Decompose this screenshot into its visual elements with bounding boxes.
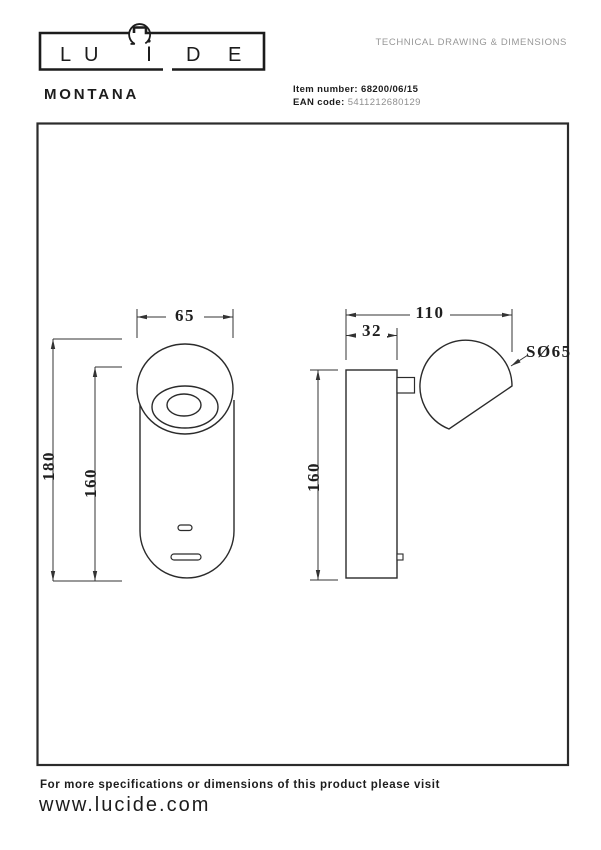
- dim-value-65: 65: [175, 306, 195, 325]
- sphere-diameter-callout: SØ65: [511, 342, 572, 366]
- dim-overall-height-180: 180: [39, 339, 122, 581]
- dim-base-depth-32: 32: [346, 321, 397, 360]
- side-view: [346, 340, 512, 578]
- dim-value-160-side: 160: [304, 462, 323, 492]
- side-view-joint: [397, 378, 415, 394]
- dim-body-height-160-front: 160: [81, 367, 122, 581]
- spec-sheet-page: L U D E TECHNICAL DRAWING & DIMENSIONS M…: [0, 0, 601, 850]
- dim-value-160-front: 160: [81, 468, 100, 498]
- sphere-diameter-label: SØ65: [526, 342, 572, 361]
- front-view: [137, 344, 234, 578]
- dim-body-height-160-side: 160: [304, 370, 338, 580]
- technical-drawing: 65 180 160: [0, 0, 601, 850]
- side-view-body: [346, 370, 397, 578]
- dim-value-180: 180: [39, 451, 58, 481]
- dim-value-32: 32: [362, 321, 382, 340]
- dim-value-110: 110: [415, 303, 444, 322]
- website-link[interactable]: www.lucide.com: [39, 794, 210, 817]
- front-view-head: [137, 344, 233, 434]
- dim-head-width-65: 65: [137, 306, 233, 338]
- drawing-border: [38, 124, 569, 766]
- side-view-switch: [397, 554, 403, 560]
- footer-note: For more specifications or dimensions of…: [40, 779, 440, 791]
- side-view-head: [420, 340, 512, 429]
